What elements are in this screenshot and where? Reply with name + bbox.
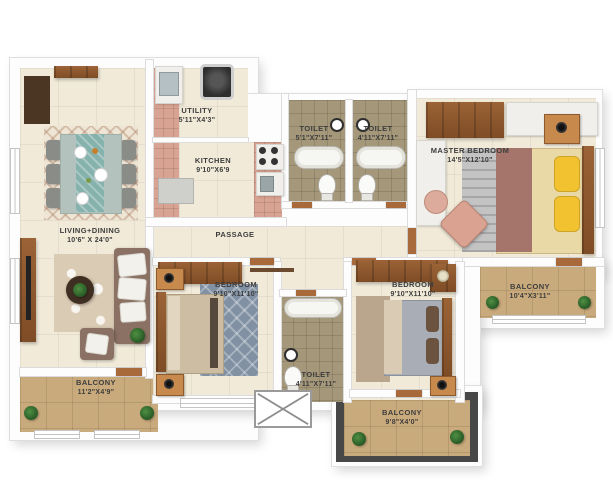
utility-sink-basin: [159, 72, 179, 96]
balcony-plant: [352, 432, 366, 446]
wall-bedroom1-right: [274, 262, 281, 402]
balcony-right-floor: [480, 264, 596, 318]
bed-sheet: [168, 296, 180, 370]
sofa-cushion: [117, 277, 147, 301]
shaft-cross-icon: [256, 392, 310, 426]
wall-toilet-divider: [346, 100, 352, 202]
window: [94, 430, 140, 439]
wc-icon: [318, 174, 336, 196]
tv: [26, 256, 31, 320]
wall-utility-kitchen: [153, 138, 248, 142]
plate: [74, 146, 87, 159]
window: [10, 258, 20, 324]
bedroom1-headboard: [156, 292, 166, 372]
sofa-cushion: [117, 253, 147, 278]
window: [180, 398, 260, 408]
door-toilet3: [296, 290, 316, 296]
door-bedroom1: [250, 258, 274, 265]
master-blanket: [496, 148, 532, 252]
balcony-left-floor: [20, 376, 158, 432]
dining-chair: [120, 140, 136, 160]
pillow: [426, 338, 439, 364]
balcony-plant: [24, 406, 38, 420]
wc-icon: [358, 174, 376, 196]
food-item: [86, 178, 91, 183]
lamp-icon: [556, 122, 567, 133]
door-balcony-bottom: [396, 390, 422, 397]
pillow: [426, 306, 439, 332]
wall-toilet3-right: [344, 262, 351, 402]
passage-floor: [153, 226, 408, 258]
plate: [76, 192, 89, 205]
burner: [259, 147, 266, 154]
window: [34, 430, 80, 439]
burner: [271, 158, 278, 165]
door-master: [408, 228, 416, 254]
pillow: [554, 156, 580, 192]
kitchen-counter: [158, 178, 194, 204]
decor-bowl: [437, 270, 449, 282]
bedroom2-headboard: [442, 298, 452, 376]
balcony-plant: [450, 430, 464, 444]
balcony-bottom-floor: [344, 400, 470, 456]
master-headboard: [582, 146, 594, 254]
pillow: [554, 196, 580, 232]
service-shaft: [254, 390, 312, 428]
door-balcony-left: [116, 368, 142, 376]
wall-shelf: [250, 268, 294, 272]
lamp-icon: [164, 379, 174, 389]
lamp-icon: [164, 273, 174, 283]
door-toilet1: [292, 202, 312, 208]
dining-chair: [120, 164, 136, 184]
sofa-cushion: [119, 301, 146, 323]
lamp-icon: [437, 380, 447, 390]
window: [492, 315, 586, 324]
window: [10, 148, 20, 214]
wall-kitchen-passage: [146, 218, 286, 226]
balcony-plant: [486, 296, 499, 309]
burner: [271, 147, 278, 154]
bed-runner: [210, 298, 218, 368]
living-plant: [130, 328, 145, 343]
bathtub: [294, 146, 344, 169]
dining-chair: [120, 188, 136, 208]
washbasin-icon: [330, 118, 344, 132]
bathtub: [356, 146, 406, 169]
washbasin-icon: [356, 118, 370, 132]
balcony-plant: [140, 406, 154, 420]
coffee-table-plant: [73, 283, 87, 297]
kitchen-sink-basin: [260, 176, 274, 192]
bathtub: [284, 298, 342, 318]
pouf: [424, 190, 448, 214]
burner: [259, 158, 266, 165]
washbasin-icon: [284, 348, 298, 362]
door-balcony-right: [556, 258, 582, 266]
bed-throw: [384, 300, 402, 374]
master-wardrobe: [426, 102, 504, 138]
door-toilet2: [386, 202, 406, 208]
floor-plan: LIVING+DINING 10'6" X 24'0" UTILITY 5'11…: [0, 0, 613, 500]
plate: [94, 168, 108, 182]
food-item: [92, 148, 98, 154]
washing-machine: [200, 64, 234, 100]
balcony-plant: [578, 296, 591, 309]
wc-icon: [284, 366, 302, 388]
window: [595, 148, 605, 228]
armchair-cushion: [85, 333, 110, 356]
console-table: [54, 66, 98, 78]
foyer-art: [24, 76, 50, 124]
wall-bedroom2-right: [456, 262, 464, 402]
